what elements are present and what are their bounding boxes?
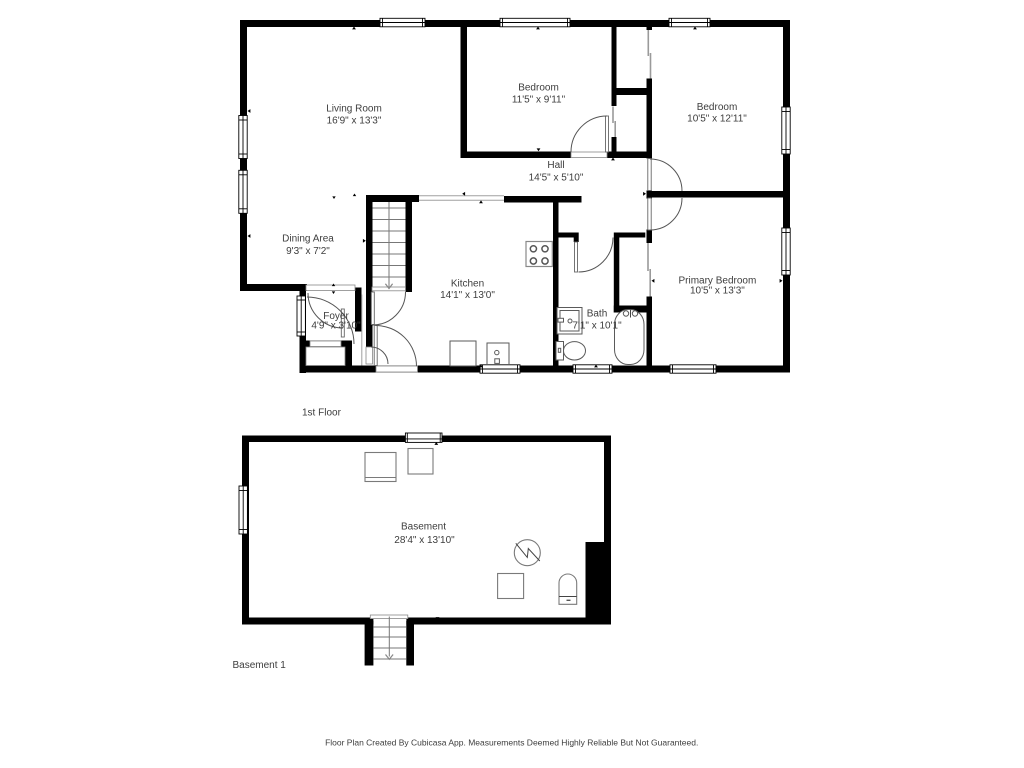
svg-text:Kitchen: Kitchen: [451, 278, 484, 289]
svg-text:Living Room: Living Room: [326, 103, 382, 114]
svg-text:4'9" x 3'10": 4'9" x 3'10": [311, 321, 361, 332]
svg-text:Bedroom: Bedroom: [697, 102, 738, 113]
svg-text:10'5" x 13'3": 10'5" x 13'3": [690, 286, 745, 297]
svg-text:16'9" x 13'3": 16'9" x 13'3": [327, 115, 382, 126]
svg-text:Floor Plan Created By Cubicasa: Floor Plan Created By Cubicasa App. Meas…: [325, 737, 698, 747]
svg-text:Basement: Basement: [401, 522, 446, 533]
svg-text:10'5" x 12'11": 10'5" x 12'11": [687, 114, 747, 125]
svg-text:14'5" x 5'10": 14'5" x 5'10": [529, 172, 584, 183]
svg-text:Bedroom: Bedroom: [518, 83, 559, 94]
svg-text:7'1" x 10'1": 7'1" x 10'1": [572, 321, 622, 332]
svg-text:11'5" x 9'11": 11'5" x 9'11": [512, 94, 566, 105]
svg-text:1st Floor: 1st Floor: [302, 407, 342, 418]
svg-text:Hall: Hall: [547, 160, 564, 171]
svg-text:28'4" x 13'10": 28'4" x 13'10": [394, 535, 455, 546]
svg-text:14'1" x 13'0": 14'1" x 13'0": [440, 290, 495, 301]
svg-text:Basement 1: Basement 1: [233, 660, 287, 671]
svg-text:Dining Area: Dining Area: [282, 234, 334, 245]
svg-text:Bath: Bath: [587, 309, 608, 320]
svg-text:9'3" x 7'2": 9'3" x 7'2": [286, 246, 330, 257]
